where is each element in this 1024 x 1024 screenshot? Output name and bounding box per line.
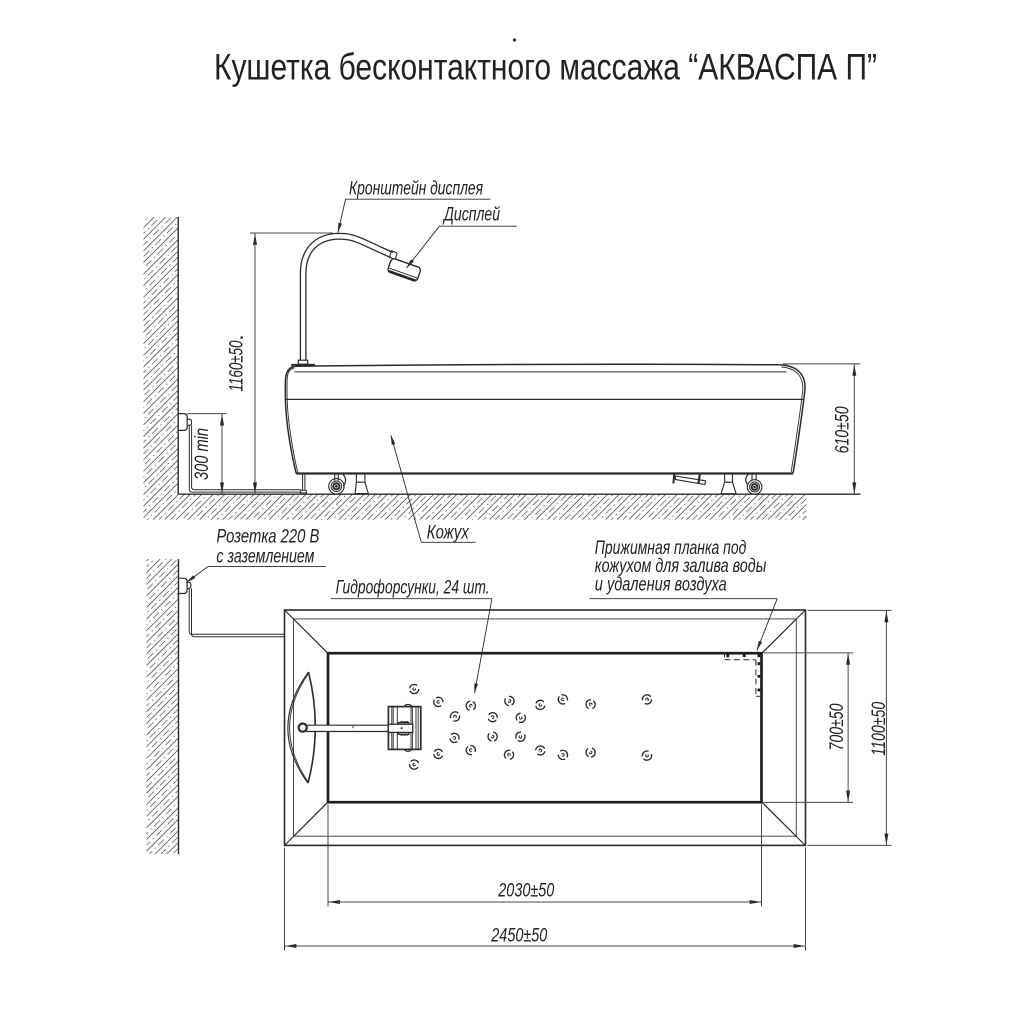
svg-text:2450±50: 2450±50 bbox=[491, 925, 548, 946]
svg-text:1100±50: 1100±50 bbox=[869, 701, 890, 755]
svg-text:610±50: 610±50 bbox=[833, 406, 854, 453]
svg-text:Кушетка бесконтактного массажа: Кушетка бесконтактного массажа “АКВАСПА … bbox=[214, 47, 877, 88]
svg-text:300 min: 300 min bbox=[192, 428, 213, 480]
svg-text:Кожух: Кожух bbox=[427, 523, 470, 544]
svg-text:Кронштейн дисплея: Кронштейн дисплея bbox=[349, 179, 483, 200]
svg-text:Розетка 220 В: Розетка 220 В bbox=[216, 527, 319, 548]
svg-text:1160±50: 1160±50 bbox=[227, 340, 248, 391]
svg-text:2030±50: 2030±50 bbox=[498, 880, 555, 901]
svg-text:Гидрофорсунки, 24 шт.: Гидрофорсунки, 24 шт. bbox=[336, 578, 490, 599]
svg-text:и удаления воздуха: и удаления воздуха bbox=[595, 575, 727, 596]
svg-text:Дисплей: Дисплей bbox=[443, 205, 501, 226]
svg-text:700±50: 700±50 bbox=[827, 703, 848, 750]
svg-text:с заземлением: с заземлением bbox=[216, 547, 314, 568]
